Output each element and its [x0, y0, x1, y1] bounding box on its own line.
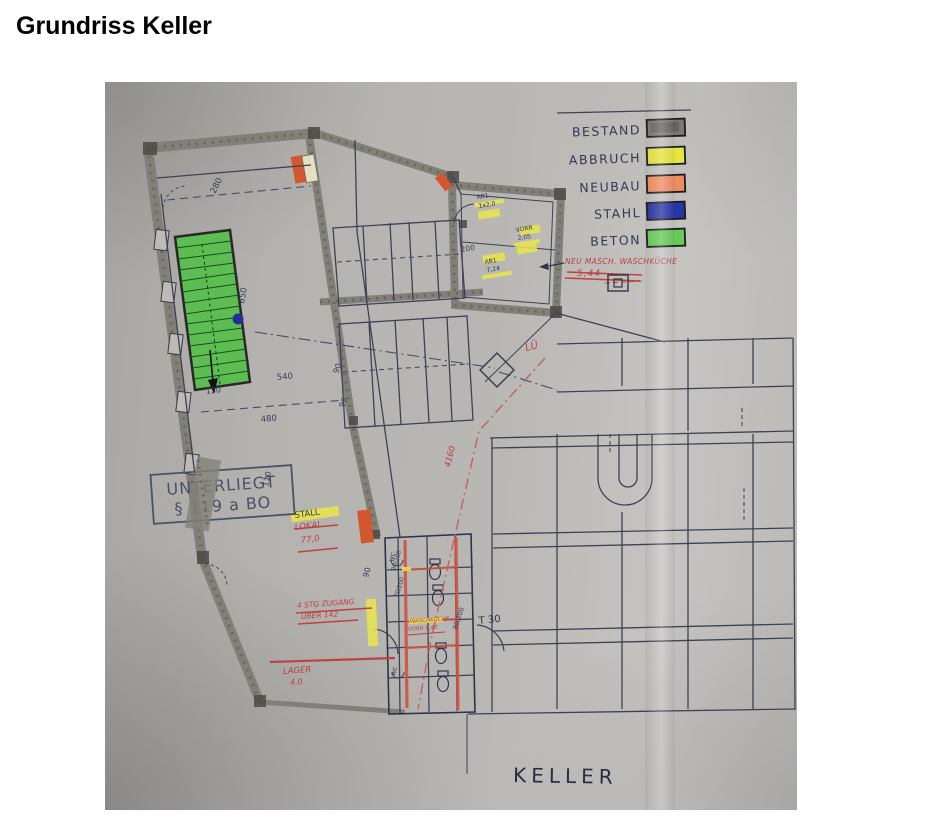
floorplan-photo: UNTERLIEGT § 119 a BO BESTAND ABBRUCH NE… [105, 82, 797, 810]
floorplan-drawing: UNTERLIEGT § 119 a BO BESTAND ABBRUCH NE… [105, 82, 797, 810]
room-label-keller: KELLER [513, 763, 618, 789]
dim-80-200: 80/200 [451, 606, 466, 630]
annotation-lager: LAGER [283, 665, 312, 677]
legend-label-abbruch: ABBRUCH [569, 150, 642, 168]
machine-symbol [608, 275, 628, 291]
annotation-area-544: 5,44 [577, 269, 601, 279]
legend-label-bestand: BESTAND [572, 122, 642, 139]
dim-200: 200 [460, 243, 476, 254]
annotation-zugang-2: ÜBER 142 [301, 609, 339, 621]
annotation-waschkueche: WASCHKÜCHE [410, 615, 450, 625]
page-title: Grundriss Keller [16, 12, 212, 41]
neubau-patches [291, 154, 453, 543]
stamp-unterliegt: UNTERLIEGT § 119 a BO [150, 465, 294, 524]
legend-label-stahl: STAHL [594, 205, 642, 222]
stahl-dot [233, 314, 244, 325]
annotation-ab1-b2: 7,24 [486, 265, 500, 274]
staircase-beton [175, 230, 250, 394]
dim-650: 650 [237, 287, 250, 305]
dim-130: 130 [205, 385, 221, 396]
annotation-stall: STALL [294, 508, 321, 521]
legend-label-neubau: NEUBAU [579, 178, 641, 195]
annotation-lokal: LOKAL [294, 520, 323, 533]
dim-90c: 90 [361, 566, 372, 578]
annotation-zugang-1: 4 STG ZUGANG [297, 597, 355, 610]
annotation-vorr-940: VORR 9,40 [408, 625, 439, 633]
annotation-wc-2: WC [391, 666, 399, 677]
legend-label-beton: BETON [590, 232, 641, 249]
dim-280: 280 [209, 176, 225, 195]
annotation-ab1-a2: 1x2,0 [478, 200, 496, 210]
annotation-4160: 4160 [443, 445, 458, 468]
dim-540: 540 [276, 372, 293, 383]
annotation-area-40: 4,0 [290, 677, 303, 687]
paper-crease [645, 82, 675, 810]
annotation-area-770: 77,0 [300, 534, 320, 546]
annotation-t30: T 30 [477, 614, 501, 627]
annotation-ab1-a: AB1 [476, 192, 489, 201]
dim-480: 480 [260, 414, 277, 425]
annotation-lue: LÜ [524, 338, 541, 354]
